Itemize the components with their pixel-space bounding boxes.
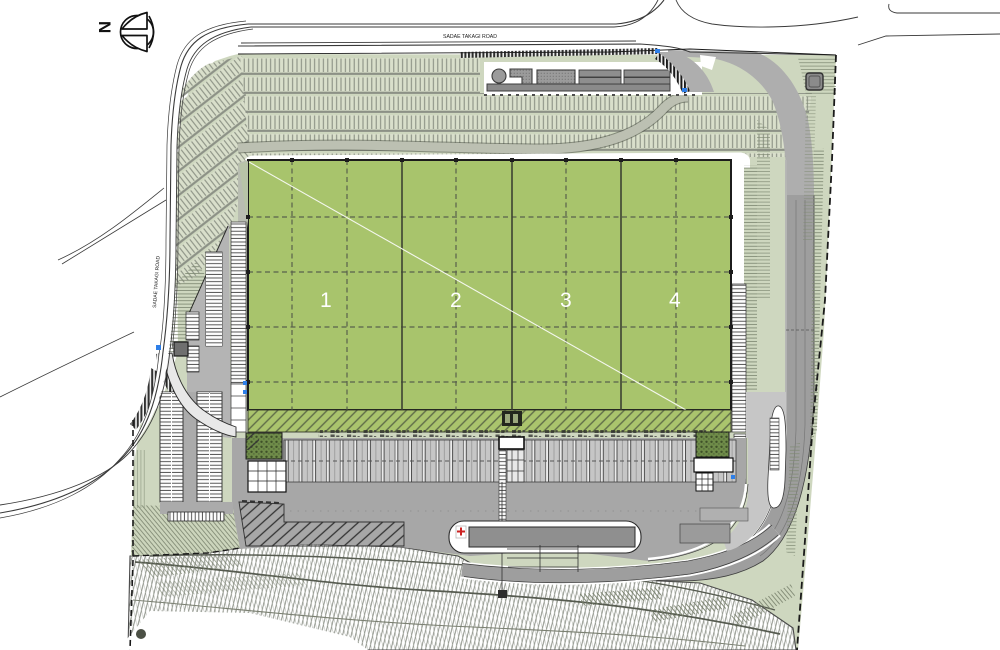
svg-text:3: 3 — [560, 289, 572, 312]
svg-text:N: N — [95, 21, 114, 33]
svg-text:2: 2 — [450, 289, 462, 312]
svg-text:1: 1 — [320, 289, 332, 312]
svg-text:4: 4 — [669, 289, 681, 312]
svg-text:SADAE TAKAGI ROAD: SADAE TAKAGI ROAD — [443, 34, 497, 40]
